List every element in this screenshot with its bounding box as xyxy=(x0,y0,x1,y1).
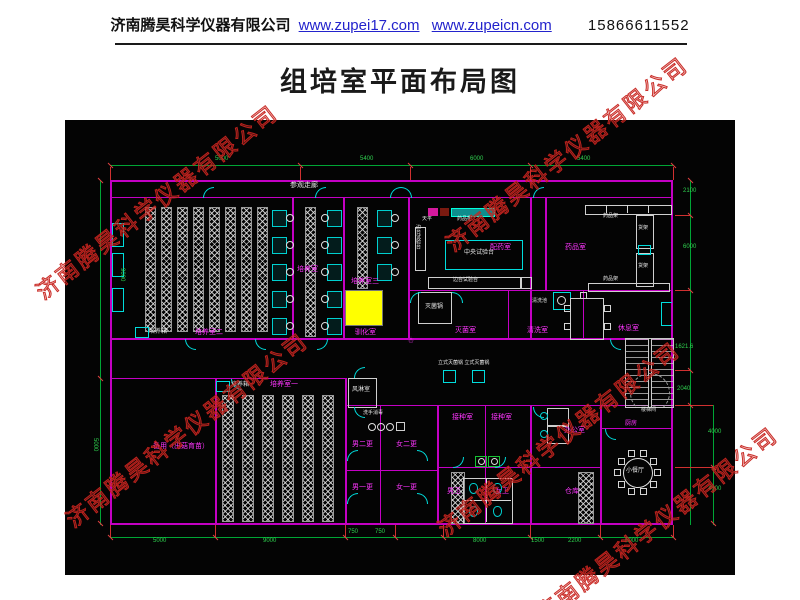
room-label: 女卫 xyxy=(495,488,509,495)
dimension-label: 5000 xyxy=(92,438,98,451)
dimension-label: 4000 xyxy=(708,486,721,492)
room-label: 备用（出菇育苗） xyxy=(153,443,209,450)
dimension-label: 750 xyxy=(375,529,385,535)
equipment-label: 边台试验台 xyxy=(453,278,478,283)
dimension-label: 1500 xyxy=(531,538,544,544)
room-label: 培养室一 xyxy=(270,381,298,388)
room-label: 男二更 xyxy=(352,441,373,448)
room-label: 楼梯间 xyxy=(641,408,656,413)
room-label: 接种室 xyxy=(452,414,473,421)
dimension-label: 5000 xyxy=(215,156,228,162)
room-label: 风淋室 xyxy=(352,387,370,393)
dimension-label: 1621.6 xyxy=(675,344,693,350)
link-zupeicn[interactable]: www.zupeicn.com xyxy=(432,17,552,34)
room-label: 培养箱 xyxy=(231,382,249,388)
room-label: 休息室 xyxy=(618,325,639,332)
header-divider xyxy=(115,43,687,45)
equipment-label: 清洗池 xyxy=(532,299,547,304)
room-label: 男卫 xyxy=(447,488,461,495)
equipment-label: 边台试验台 xyxy=(415,224,420,249)
dimension-label: 9000 xyxy=(119,268,125,281)
room-label: 男一更 xyxy=(352,484,373,491)
phone-number: 15866611552 xyxy=(588,17,690,34)
room-label: 培养室三 xyxy=(351,278,379,285)
dimension-label: 750 xyxy=(348,529,358,535)
dimension-label: 9000 xyxy=(263,538,276,544)
equipment-label: 立式灭菌锅 立式灭菌锅 xyxy=(438,361,489,366)
dimension-label: 2100 xyxy=(683,188,696,194)
dimension-label: 5400 xyxy=(577,156,590,162)
room-label: 女二更 xyxy=(396,441,417,448)
room-label: 女一更 xyxy=(396,484,417,491)
room-label: 驯化室 xyxy=(355,329,376,336)
equipment-label: 灭菌锅 xyxy=(425,304,443,310)
room-label: 灭菌室 xyxy=(455,327,476,334)
link-zupei17[interactable]: www.zupei17.com xyxy=(299,17,420,34)
room-label: 培养箱 xyxy=(149,329,167,335)
dimension-label: 2200 xyxy=(568,538,581,544)
label-layer: 参观走廊培养箱培养室二培养室培养室三驯化室配药室药品室灭菌室清洗室休息室培养箱培… xyxy=(65,120,735,575)
room-label: 清洗室 xyxy=(527,327,548,334)
dimension-label: 2040 xyxy=(677,386,690,392)
dimension-label: 5000 xyxy=(625,538,638,544)
equipment-label: 货架 xyxy=(638,264,648,269)
room-label: 仓库 xyxy=(565,488,579,495)
room-label: 厨房 xyxy=(625,421,637,427)
equipment-label: 药品柜 xyxy=(457,217,472,222)
equipment-label: 药品架 xyxy=(603,277,618,282)
room-label: 药品室 xyxy=(565,244,586,251)
highlight-box xyxy=(345,290,383,326)
equipment-label: 中央试验台 xyxy=(464,250,494,256)
dimension-label: 4000 xyxy=(708,429,721,435)
room-label: 办公室 xyxy=(564,427,585,434)
dimension-label: 6000 xyxy=(470,156,483,162)
dimension-label: 6000 xyxy=(683,244,696,250)
dimension-label: 5000 xyxy=(153,538,166,544)
room-label: 接种室 xyxy=(491,414,512,421)
page: { "header": { "company": "济南腾昊科学仪器有限公司",… xyxy=(0,0,800,600)
equipment-label: 药品架 xyxy=(603,214,618,219)
page-header: 济南腾昊科学仪器有限公司 www.zupei17.com www.zupeicn… xyxy=(0,14,800,35)
room-label: 培养室 xyxy=(297,266,318,273)
company-name: 济南腾昊科学仪器有限公司 xyxy=(110,17,290,34)
equipment-label: 货架 xyxy=(638,226,648,231)
equipment-label: 天平 xyxy=(422,217,432,222)
dimension-label: 8000 xyxy=(473,538,486,544)
room-label: 小餐厅 xyxy=(626,468,644,474)
room-label: 洗手消毒 xyxy=(363,411,383,416)
dimension-label: 5400 xyxy=(360,156,373,162)
page-title: 组培室平面布局图 xyxy=(0,60,800,99)
floorplan-canvas: ☃ 参观走廊培养箱培养室二培养室培养室三驯化室配药室药品室灭菌室清洗室休息室培养… xyxy=(65,120,735,575)
room-label: 培养室二 xyxy=(195,329,223,336)
room-label: 参观走廊 xyxy=(290,182,318,189)
